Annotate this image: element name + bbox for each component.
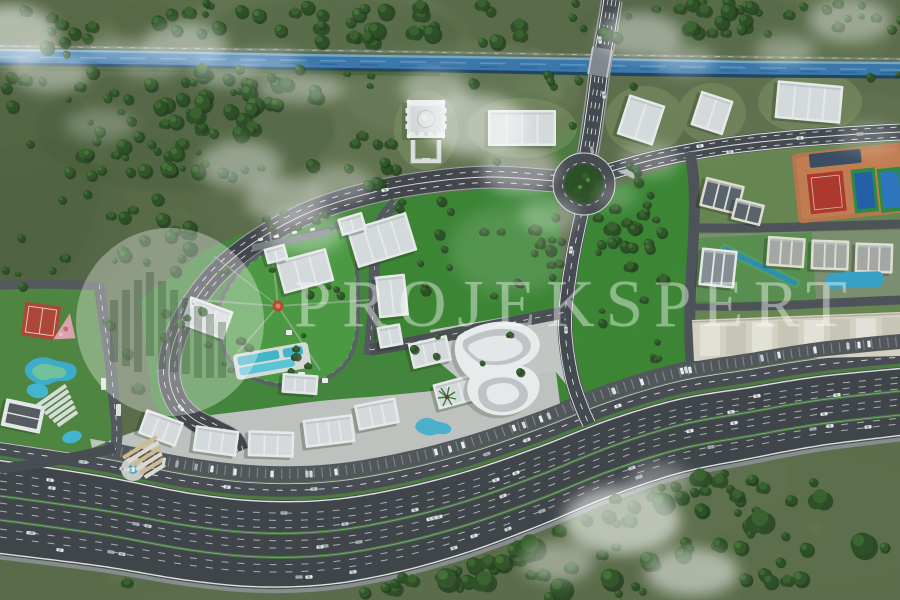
- svg-text:PROJEKSPERT: PROJEKSPERT: [294, 267, 858, 341]
